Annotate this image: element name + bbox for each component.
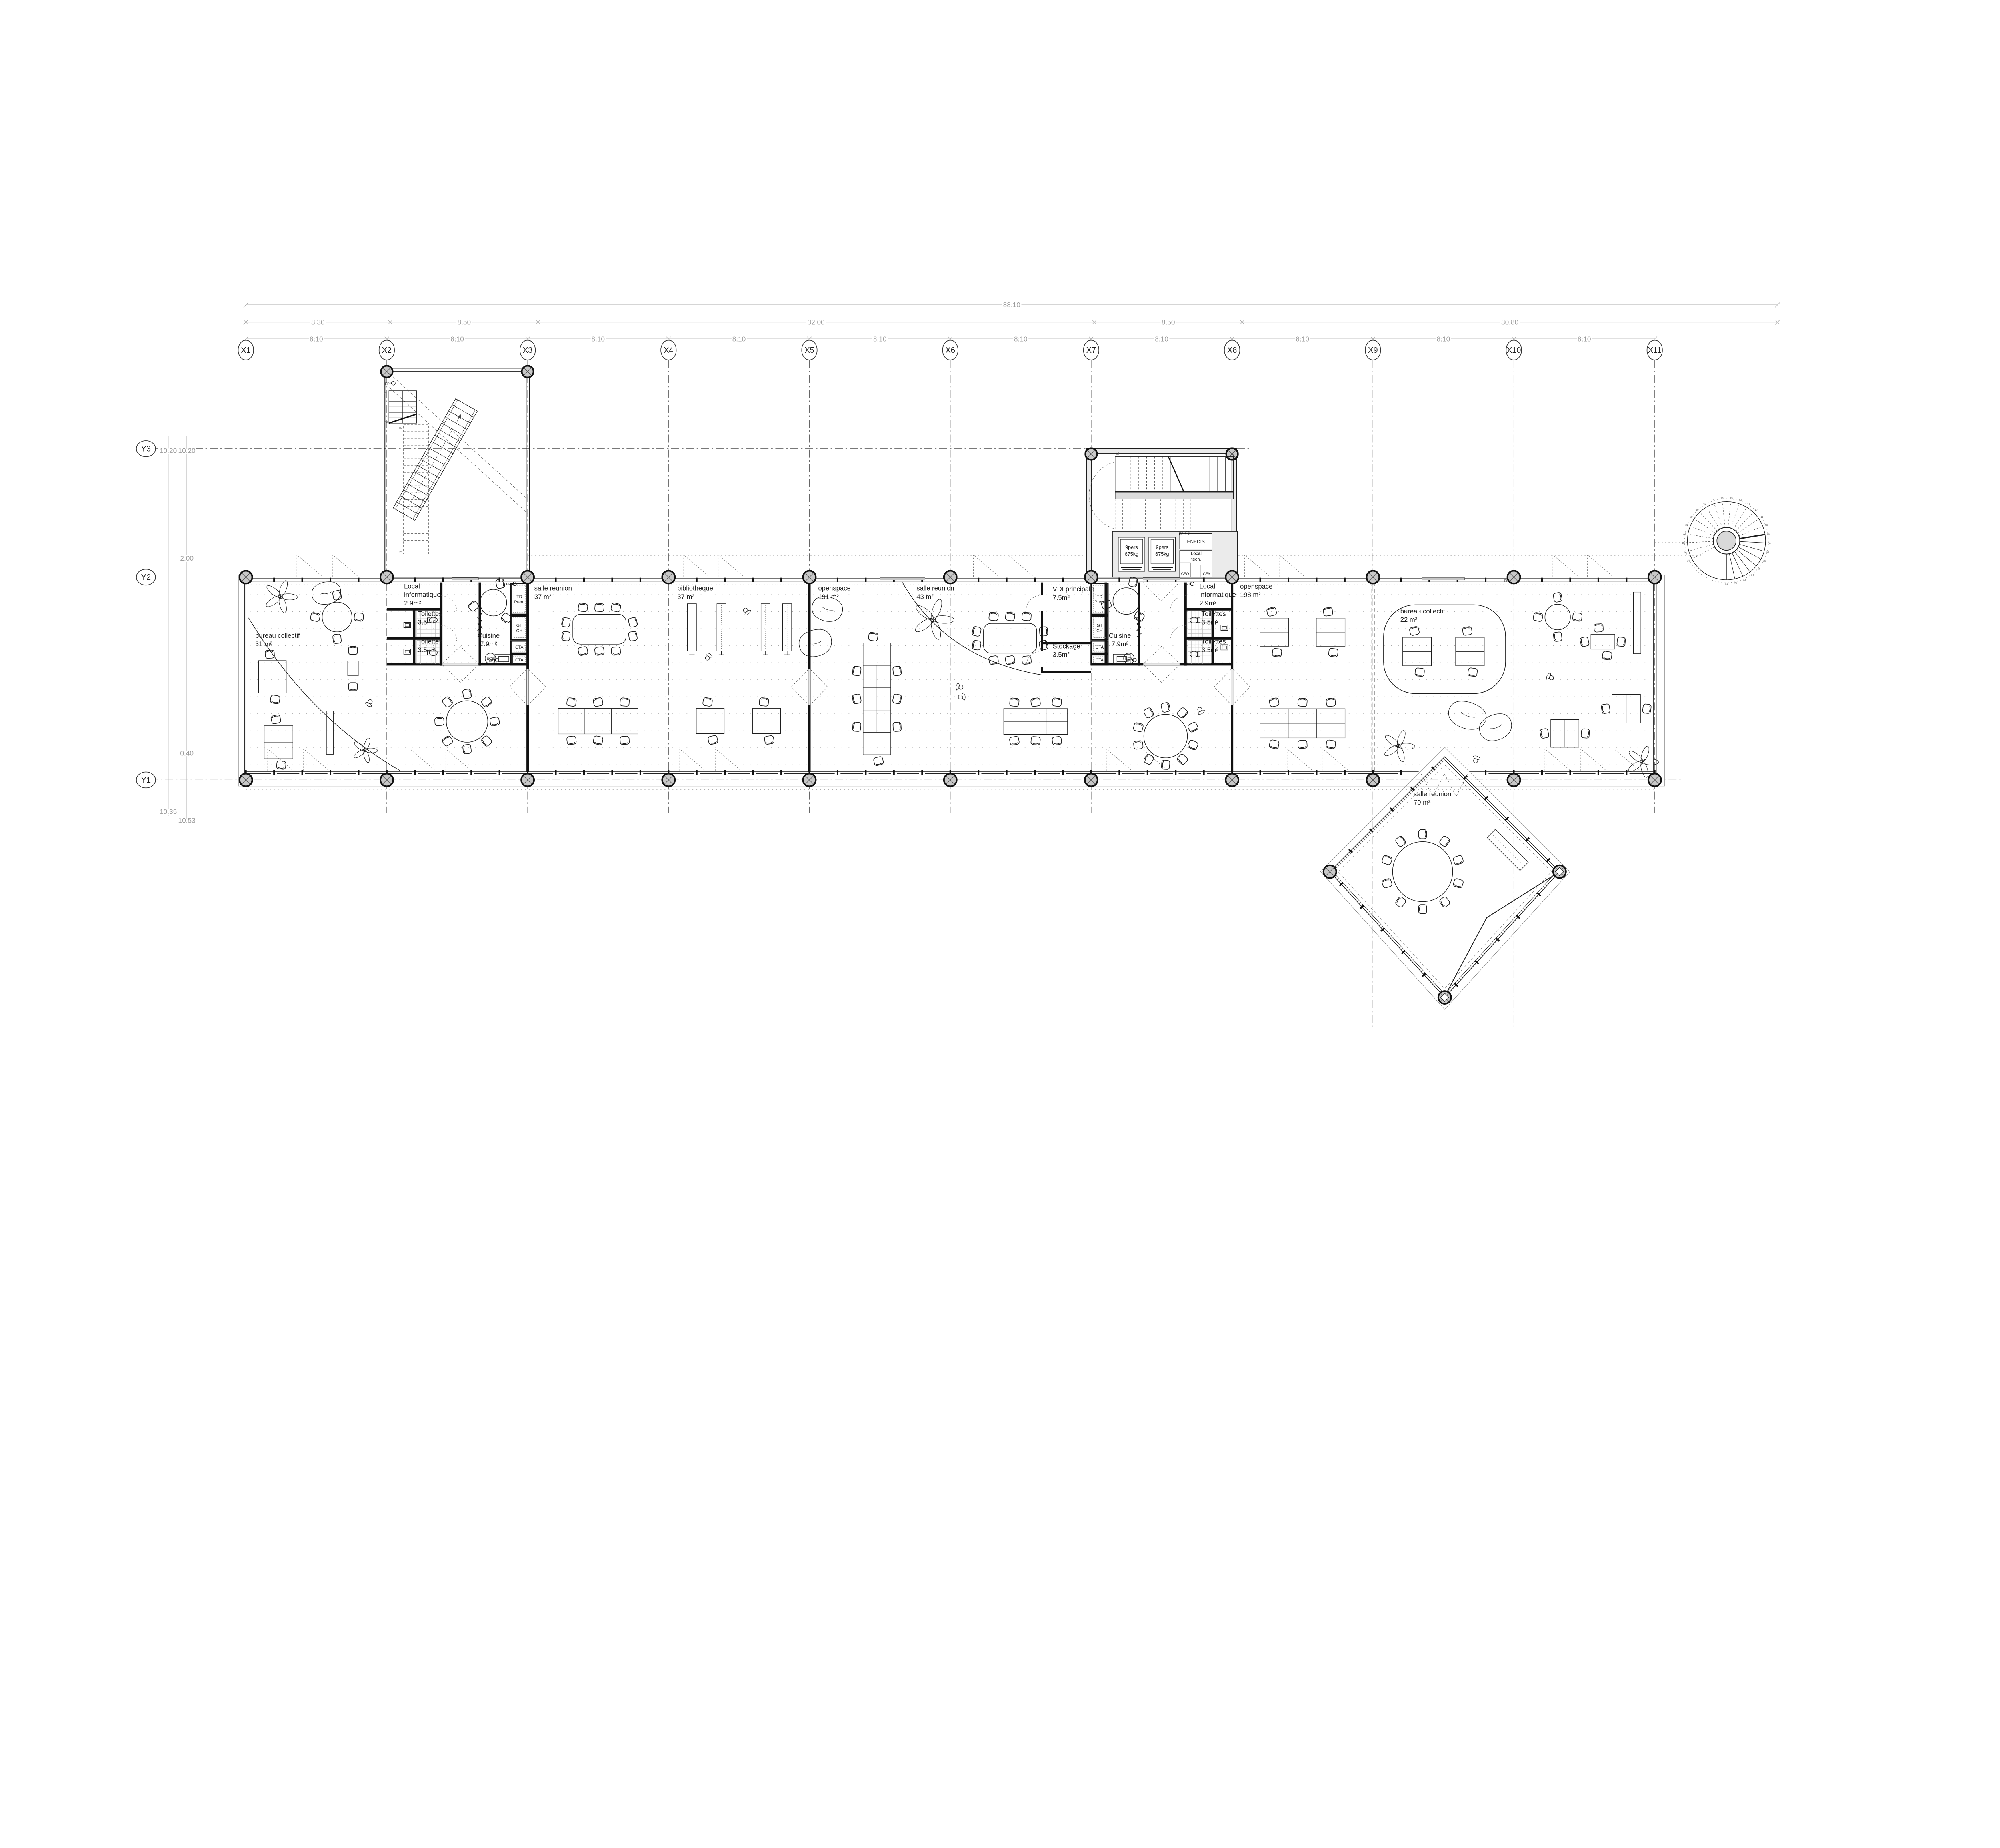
facade-post (583, 578, 585, 582)
facade-post (1288, 578, 1289, 582)
floor-plan-canvas: 88.108.308.5032.008.5030.808.108.108.108… (0, 0, 2000, 1228)
spiral-tread-number: 09 (1767, 533, 1770, 536)
facade-post (1062, 578, 1064, 582)
tech-cell-label: CTA (1096, 645, 1104, 650)
cfo-label: CFO (1181, 572, 1189, 576)
facade-post (1344, 578, 1346, 582)
facade-post (358, 770, 359, 775)
room-label: informatique (1199, 591, 1236, 599)
facade-post (1260, 770, 1261, 775)
room-label: 3.5m² (418, 646, 435, 654)
grid-bubble-text: Y2 (141, 573, 151, 582)
grid-bubble-text: Y3 (141, 444, 151, 453)
facade-post (1288, 770, 1289, 775)
door-leaf (526, 669, 528, 705)
room-label: openspace (1240, 583, 1272, 590)
tech-cell-label: GT (516, 623, 522, 628)
lift-label: 9pers (1156, 545, 1169, 550)
facade-post (752, 770, 754, 775)
facade-post (442, 578, 444, 582)
room-label: 43 m² (916, 593, 934, 601)
room-label: bibliotheque (677, 585, 713, 592)
lift-label: 675kg (1125, 551, 1138, 557)
ep-square (1185, 533, 1186, 534)
facade-post (330, 578, 331, 582)
facade-post (1006, 578, 1008, 582)
facade-post (837, 578, 838, 582)
door-leaf (808, 669, 810, 705)
grid-bubble-x4: X4 (661, 340, 676, 360)
dim-row-bays-label: 8.10 (873, 335, 887, 343)
room-label: VDI principale (1053, 585, 1094, 593)
room-label: 7.5m² (1053, 594, 1070, 601)
room-label: Toilettes (1202, 638, 1226, 645)
dim-left-label: 10.53 (178, 816, 196, 824)
grid-bubble-text: X5 (804, 346, 814, 355)
facade-post (1006, 770, 1008, 775)
room-label: 37 m² (677, 593, 694, 601)
facade-post (780, 770, 782, 775)
facade-post (1485, 770, 1486, 775)
facade-post (1598, 770, 1599, 775)
facade-post (1598, 578, 1599, 582)
facade-post (583, 770, 585, 775)
grid-bubble-y3: Y3 (136, 441, 156, 457)
dim-left-label: 2.00 (180, 554, 194, 562)
facade-post (302, 578, 303, 582)
room-label: 31 m² (255, 640, 272, 648)
facade-post (273, 578, 275, 582)
facade-post (837, 770, 838, 775)
local-tech-label: Local (1191, 551, 1202, 556)
facade-post (752, 578, 754, 582)
grid-bubble-text: X1 (241, 346, 251, 355)
facade-post (780, 578, 782, 582)
ep-square (512, 583, 514, 585)
dim-row-bays-label: 8.10 (310, 335, 323, 343)
room-label: 2.9m² (404, 599, 421, 607)
room-label: openspace (818, 585, 850, 592)
facade-post (1400, 578, 1402, 582)
dim-row-overall-label: 88.10 (1003, 301, 1020, 309)
spiral-tread-number: 14 (1739, 499, 1742, 502)
dim-left-label: 0.40 (180, 749, 194, 757)
tread-number: 01 (1231, 452, 1234, 455)
facade-post (499, 578, 500, 582)
room-label: 70 m² (1414, 799, 1431, 806)
facade-post (1316, 578, 1317, 582)
ep-square (494, 659, 496, 661)
ep-label: EP (1179, 532, 1184, 536)
tread-number: 06 (384, 420, 388, 424)
room-label: Toilettes (418, 638, 442, 645)
facade-post (640, 770, 641, 775)
grid-bubble-y1: Y1 (136, 772, 156, 788)
tech-cell-label: CTA (515, 658, 524, 663)
ep-square (1132, 659, 1134, 661)
spiral-hub-column (1717, 531, 1736, 550)
room-label: Local (1199, 582, 1215, 590)
door-leaf (1144, 663, 1180, 665)
tech-cell-label: CH (516, 629, 522, 633)
facade-post (978, 770, 979, 775)
spiral-tread-number: 21 (1685, 524, 1688, 527)
enedis-label: ENEDIS (1187, 539, 1205, 544)
facade-post (1344, 770, 1346, 775)
dim-row-spans-label: 30.80 (1501, 318, 1518, 326)
facade-post (1541, 578, 1543, 582)
dim-row-bays-label: 8.10 (591, 335, 605, 343)
dim-row-bays-label: 8.10 (450, 335, 464, 343)
tread-number: 01 (384, 392, 388, 395)
grid-bubble-text: X11 (1648, 346, 1662, 355)
spiral-tread-number: 19 (1696, 509, 1699, 511)
spiral-tread-number: 04 (1751, 574, 1754, 577)
room-label: salle reunion (534, 585, 572, 592)
dim-row-bays-label: 8.10 (732, 335, 746, 343)
facade-post (1062, 770, 1064, 775)
room-label: informatique (404, 591, 440, 599)
facade-post (555, 578, 557, 582)
room-label: 7.9m² (1111, 640, 1128, 648)
facade-post (1541, 770, 1543, 775)
facade-post (978, 578, 979, 582)
room-label: Stockage (1053, 642, 1080, 650)
room-label: Cuisine (478, 632, 500, 639)
dim-row-bays-label: 8.10 (1155, 335, 1168, 343)
grid-bubble-text: X10 (1507, 346, 1521, 355)
facade-post (330, 770, 331, 775)
spiral-tread-number: 10 (1765, 524, 1768, 527)
grid-bubble-x10: X10 (1506, 340, 1522, 360)
dim-row-spans-label: 8.50 (1162, 318, 1175, 326)
grid-bubble-text: X4 (664, 346, 673, 355)
room-label: 7.9m² (480, 640, 497, 648)
facade-post (414, 770, 416, 775)
floor-plan-page: 88.108.308.5032.008.5030.808.108.108.108… (0, 0, 2000, 1228)
facade-post (1626, 770, 1627, 775)
tread-number: 07 (399, 426, 402, 430)
facade-post (1203, 770, 1205, 775)
room-label: bureau collectif (255, 632, 300, 639)
tech-cell-label: Pren. (514, 600, 524, 605)
room-label: salle reunion (1414, 790, 1451, 798)
dim-row-bays-label: 8.10 (1014, 335, 1028, 343)
facade-post (442, 770, 444, 775)
facade-post (865, 578, 866, 582)
tech-cell-label: TD (1097, 595, 1102, 599)
facade-post (414, 578, 416, 582)
grid-bubble-x2: X2 (379, 340, 395, 360)
facade-post (724, 770, 726, 775)
spiral-tread-number: 01 (1725, 583, 1728, 585)
dim-row-bays-label: 8.10 (1578, 335, 1591, 343)
tech-cell-label: CH (1096, 629, 1102, 633)
spiral-tread-number: 17 (1712, 499, 1715, 502)
room-label: Toilettes (418, 610, 442, 617)
dim-row-spans-label: 8.30 (311, 318, 325, 326)
grid-bubble-x6: X6 (942, 340, 958, 360)
facade-post (1485, 578, 1486, 582)
facade-post (1034, 770, 1036, 775)
ep-label: EP (1184, 582, 1188, 586)
facade-post (499, 770, 500, 775)
door-leaf (1231, 669, 1233, 705)
door-leaf (442, 663, 478, 665)
spiral-tread-number: 16 (1720, 497, 1724, 500)
facade-post (1175, 770, 1176, 775)
room-label: 198 m² (1240, 591, 1261, 599)
tower-landing (1115, 492, 1234, 499)
dim-left-label: 10.20 (160, 446, 177, 454)
facade-post (1569, 770, 1571, 775)
spiral-tread-number: 25 (1687, 560, 1690, 563)
room-label: 37 m² (534, 593, 552, 601)
dim-left-label: 10.20 (178, 446, 196, 454)
facade-post (1260, 578, 1261, 582)
dim-row-spans-label: 32.00 (808, 318, 825, 326)
facade-post (893, 770, 895, 775)
local-tech-label: tech. (1191, 557, 1201, 562)
room-label: 3.5m² (1053, 651, 1070, 659)
room-label: Local (404, 582, 420, 590)
spiral-tread-number: 18 (1703, 503, 1706, 506)
spiral-tread-number: 15 (1730, 497, 1733, 500)
facade-post (640, 578, 641, 582)
lift-label: 9pers (1125, 545, 1138, 550)
dim-row-bays-label: 8.10 (1296, 335, 1309, 343)
spiral-tread-number: 08 (1768, 542, 1771, 545)
spiral-tread-number: 12 (1754, 509, 1758, 512)
layer-grid (0, 0, 2000, 1228)
ep-label: EP (385, 382, 390, 386)
grid-bubble-text: X7 (1086, 346, 1096, 355)
grid-bubble-text: X6 (946, 346, 955, 355)
sliding-door (452, 578, 478, 580)
tread-number: 15 (1116, 452, 1119, 455)
room-label: Toilettes (1202, 610, 1226, 617)
stair-lift-tower: 011516259pers675kg9pers675kgENEDISLocalt… (1085, 448, 1238, 577)
facade-post (865, 770, 866, 775)
cfa-label: CFA (1203, 572, 1210, 576)
room-label: 22 m² (1400, 616, 1418, 623)
grid-bubble-x3: X3 (520, 340, 536, 360)
grid-bubble-y2: Y2 (136, 569, 156, 585)
ep-label: EP (1126, 659, 1131, 663)
ep-square (1190, 583, 1191, 585)
facade-post (555, 770, 557, 775)
facade-post (1626, 578, 1627, 582)
spiral-tread-number: 22 (1683, 533, 1686, 535)
spiral-tread-number: 11 (1760, 516, 1763, 519)
room-label: 3.5m² (418, 619, 435, 626)
tech-cell-label: TD (516, 595, 522, 599)
grid-bubble-x5: X5 (802, 340, 817, 360)
room-label: Cuisine (1109, 632, 1131, 639)
facade-post (611, 578, 613, 582)
grid-bubble-x9: X9 (1365, 340, 1381, 360)
spiral-tread-number: 02 (1734, 581, 1737, 584)
spiral-tread-number: 24 (1684, 551, 1687, 554)
facade-post (611, 770, 613, 775)
facade-post (696, 578, 698, 582)
sliding-door (1143, 578, 1180, 580)
grid-bubble-x7: X7 (1084, 340, 1099, 360)
room-label: 3.5m² (1202, 646, 1219, 654)
facade-post (724, 578, 726, 582)
sliding-door (880, 578, 925, 580)
facade-post (470, 770, 472, 775)
grid-bubble-text: X9 (1368, 346, 1378, 355)
dim-row-bays-label: 8.10 (1437, 335, 1450, 343)
canvas-bg (0, 0, 2000, 1228)
spiral-tread-number: 07 (1766, 551, 1770, 554)
facade-post (1569, 578, 1571, 582)
grid-bubble-text: X2 (382, 346, 392, 355)
facade-post (1118, 770, 1120, 775)
room-label: bureau collectif (1400, 607, 1445, 615)
ep-square (391, 382, 392, 384)
spiral-tread-number: 23 (1682, 542, 1686, 545)
room-label: 3.5m² (1202, 619, 1219, 626)
facade-post (1203, 578, 1205, 582)
facade-post (273, 770, 275, 775)
facade-post (1147, 770, 1148, 775)
lift-label: 675kg (1155, 551, 1169, 557)
grid-bubble-text: X3 (523, 346, 532, 355)
dim-left-label: 10.35 (160, 807, 177, 815)
grid-bubble-x1: X1 (238, 340, 254, 360)
tech-cell-label: GT (1096, 623, 1102, 628)
grid-bubble-text: X8 (1227, 346, 1237, 355)
grid-bubble-text: Y1 (141, 776, 151, 785)
sliding-door (1422, 578, 1464, 580)
tread-number: 25 (399, 550, 402, 554)
room-label: salle reunion (916, 585, 954, 592)
grid-bubble-x8: X8 (1224, 340, 1240, 360)
room-label: 191 m² (818, 593, 839, 601)
spiral-tread-number: 20 (1690, 516, 1693, 519)
facade-post (1118, 578, 1120, 582)
facade-post (1316, 770, 1317, 775)
spiral-tread-number: 03 (1743, 579, 1746, 581)
facade-post (696, 770, 698, 775)
tech-cell-label: CTA (515, 645, 524, 650)
ep-label: EP (488, 659, 493, 663)
grid-bubble-x11: X11 (1647, 340, 1662, 360)
facade-post (1400, 770, 1402, 775)
tech-cell-label: CTA (1096, 658, 1104, 663)
facade-post (358, 578, 359, 582)
spiral-tread-number: 13 (1747, 503, 1750, 506)
spiral-tread-number: 06 (1763, 560, 1766, 563)
spiral-tread-number: 05 (1758, 567, 1761, 570)
room-label: 2.9m² (1199, 599, 1216, 607)
facade-post (1034, 578, 1036, 582)
ep-label: EP (506, 582, 511, 586)
facade-post (921, 770, 923, 775)
facade-post (302, 770, 303, 775)
tech-cell-label: Pren. (1094, 600, 1104, 605)
dim-row-spans-label: 8.50 (457, 318, 471, 326)
